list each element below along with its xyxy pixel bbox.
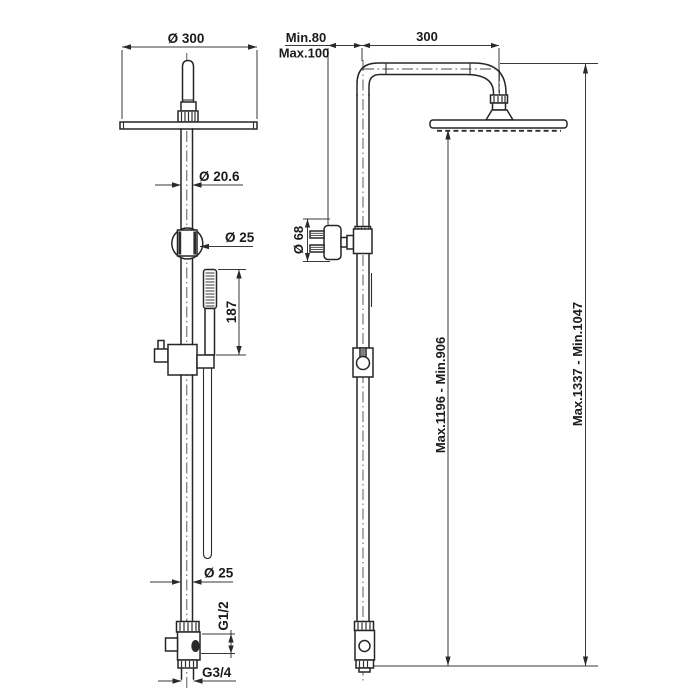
valve-screw	[191, 640, 199, 652]
valve-knob-side	[359, 641, 370, 652]
dim-inlet-thread-label: G1/2	[216, 601, 231, 630]
dim-wall-offset-max-label: Max.100	[279, 46, 330, 61]
dim-height-to-head: Max.1196 - Min.906	[433, 130, 451, 667]
shower-hose	[204, 368, 212, 559]
dim-riser-diameter-label: Ø 20.6	[199, 169, 240, 184]
rain-shower-head-side	[430, 120, 567, 131]
hand-shower-neck	[341, 238, 347, 248]
slider-lever	[155, 349, 169, 362]
hand-shower-front	[204, 270, 217, 356]
hand-shower-handle	[205, 309, 215, 356]
shower-arm	[357, 63, 506, 95]
slider-knob	[357, 357, 370, 370]
dim-head-diameter-label: Ø 300	[168, 31, 205, 46]
valve-handle	[166, 638, 178, 651]
valve-bottom-collar	[178, 660, 197, 668]
hand-shower-side	[310, 226, 372, 260]
supply-valve-side	[355, 622, 375, 673]
dim-handshower-length-label: 187	[224, 301, 239, 324]
dim-inlet-thread: G1/2	[201, 601, 235, 658]
dim-lower-riser-diameter-label: Ø 25	[204, 566, 234, 581]
ceiling-pipe	[178, 61, 198, 123]
supply-valve-front	[166, 622, 201, 680]
slider-bracket-side	[353, 348, 373, 377]
technical-drawing-page: Ø 300	[0, 0, 700, 700]
dim-handshower-head-label: Ø 68	[291, 226, 306, 254]
dim-wall-offset-min-label: Min.80	[286, 30, 326, 45]
dim-arm-reach-label: 300	[416, 29, 438, 44]
shower-column-drawing: Ø 300	[0, 0, 700, 700]
head-connector-nut	[181, 102, 196, 111]
dim-overall-height-label: Max.1337 - Min.1047	[570, 302, 585, 426]
slider-body	[168, 345, 197, 376]
hand-shower-holder	[197, 355, 214, 368]
front-view: Ø 300	[120, 31, 257, 691]
holder-body-side	[354, 229, 373, 254]
side-view: Min.80 Max.100 300	[279, 29, 598, 684]
rain-shower-head-front	[120, 122, 257, 129]
dim-diverter-diameter-label: Ø 25	[225, 230, 255, 245]
dim-overall-height: Max.1337 - Min.1047	[570, 64, 588, 667]
dim-outlet-thread-label: G3/4	[202, 665, 232, 680]
dim-handshower-length: 187	[216, 270, 246, 356]
dim-diverter-diameter: Ø 25	[200, 230, 255, 249]
dim-riser-diameter: Ø 20.6	[155, 169, 243, 188]
diverter-ball	[172, 228, 203, 259]
hand-shower-head-side	[324, 226, 341, 260]
arm-drop-connector	[486, 95, 513, 120]
dim-height-to-head-label: Max.1196 - Min.906	[433, 337, 448, 453]
